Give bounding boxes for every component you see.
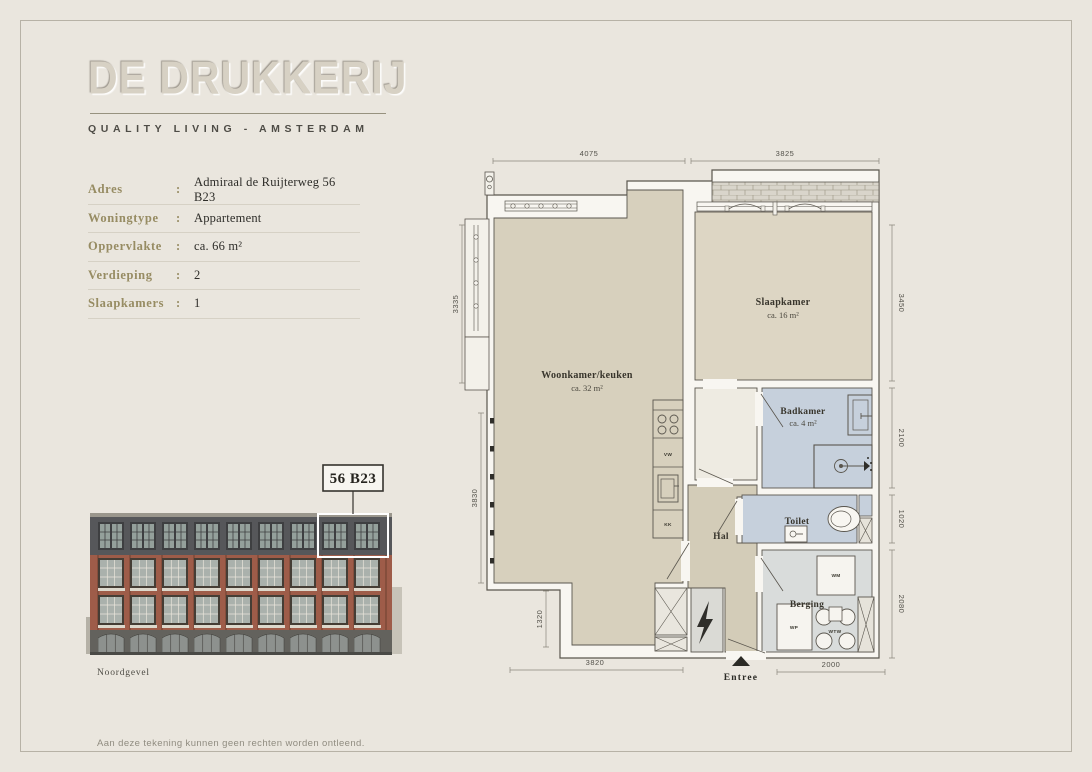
detail-label: Adres <box>88 182 176 197</box>
detail-separator: : <box>176 268 194 283</box>
heat-pump: WP <box>777 604 812 650</box>
dim-left-2: 3830 <box>470 489 479 508</box>
detail-separator: : <box>176 182 194 197</box>
shaft-hatch-berging <box>858 597 874 652</box>
room-area-slaapkamer: ca. 16 m² <box>767 310 799 320</box>
dishwasher-label: VW <box>664 452 672 458</box>
detail-row-verdieping: Verdieping : 2 <box>88 262 360 291</box>
room-label-woonkamer: Woonkamer/keuken <box>541 370 633 381</box>
room-label-badkamer: Badkamer <box>780 407 826 417</box>
heat-recovery-label: WTW <box>829 629 842 635</box>
building-elevation <box>86 513 402 655</box>
detail-value: Admiraal de Ruijterweg 56 B23 <box>194 175 360 205</box>
brand-name: DE DRUKKERIJ <box>88 52 398 105</box>
washing-machine: WM <box>817 556 855 595</box>
detail-separator: : <box>176 296 194 311</box>
detail-separator: : <box>176 239 194 254</box>
brand-rule <box>90 113 386 114</box>
dim-bottom-2: 2000 <box>822 660 841 669</box>
detail-value: 1 <box>194 296 360 311</box>
heat-pump-label: WP <box>790 625 799 631</box>
room-badkamer <box>762 388 872 488</box>
entree-label: Entree <box>724 673 758 683</box>
dim-right-4: 2080 <box>897 595 906 614</box>
shaft-hatch-left <box>655 588 687 651</box>
elevation-caption: Noordgevel <box>97 668 150 678</box>
washing-machine-label: WM <box>831 573 840 579</box>
dim-right-1: 3450 <box>897 294 906 313</box>
room-label-hal: Hal <box>713 532 729 542</box>
window-band-top <box>505 201 577 211</box>
page: DE DRUKKERIJ QUALITY LIVING - AMSTERDAM … <box>0 0 1092 772</box>
room-label-toilet: Toilet <box>785 517 810 527</box>
detail-label: Verdieping <box>88 268 176 283</box>
room-label-berging: Berging <box>790 600 824 610</box>
dim-right-3: 1020 <box>897 510 906 529</box>
floorplan: VW KK <box>445 145 975 715</box>
detail-row-slaapkamers: Slaapkamers : 1 <box>88 290 360 319</box>
room-slaapkamer <box>695 212 872 380</box>
detail-label: Woningtype <box>88 211 176 226</box>
detail-value: 2 <box>194 268 360 283</box>
detail-label: Oppervlakte <box>88 239 176 254</box>
fridge-label: KK <box>664 522 672 528</box>
toilet-bowl-icon <box>828 507 860 532</box>
dim-left-3: 1320 <box>535 610 544 629</box>
unit-label: 56 B23 <box>330 471 377 487</box>
detail-row-adres: Adres : Admiraal de Ruijterweg 56 B23 <box>88 176 360 205</box>
balcony-window-band <box>465 219 489 390</box>
room-area-woonkamer: ca. 32 m² <box>571 383 603 393</box>
detail-value: ca. 66 m² <box>194 239 360 254</box>
detail-separator: : <box>176 211 194 226</box>
room-corridor <box>695 388 757 480</box>
detail-row-oppervlakte: Oppervlakte : ca. 66 m² <box>88 233 360 262</box>
floorplan-drawing: VW KK <box>445 145 975 715</box>
meter-cupboard <box>691 588 723 652</box>
dim-bottom-1: 3820 <box>586 658 605 667</box>
room-area-badkamer: ca. 4 m² <box>789 418 817 428</box>
detail-value: Appartement <box>194 211 360 226</box>
shaft-hatch-right-small <box>859 518 872 543</box>
property-details: Adres : Admiraal de Ruijterweg 56 B23 Wo… <box>88 176 360 319</box>
detail-row-woningtype: Woningtype : Appartement <box>88 205 360 234</box>
brand-tagline: QUALITY LIVING - AMSTERDAM <box>88 123 398 135</box>
dim-right-2: 2100 <box>897 429 906 448</box>
toilet-sink-icon <box>785 526 807 542</box>
elevation-figure: 56 B23 <box>86 462 406 662</box>
dim-top-2: 3825 <box>776 149 795 158</box>
detail-label: Slaapkamers <box>88 296 176 311</box>
dim-top-1: 4075 <box>580 149 599 158</box>
brand-logo: DE DRUKKERIJ QUALITY LIVING - AMSTERDAM <box>88 52 398 135</box>
room-label-slaapkamer: Slaapkamer <box>756 297 811 308</box>
kitchen-unit: VW KK <box>653 400 683 538</box>
dim-left-1: 3335 <box>451 295 460 314</box>
disclaimer-text: Aan deze tekening kunnen geen rechten wo… <box>97 738 365 749</box>
facade-pillar <box>485 172 494 195</box>
brick-facade-band <box>712 182 879 202</box>
elevation-drawing: 56 B23 <box>86 462 406 662</box>
